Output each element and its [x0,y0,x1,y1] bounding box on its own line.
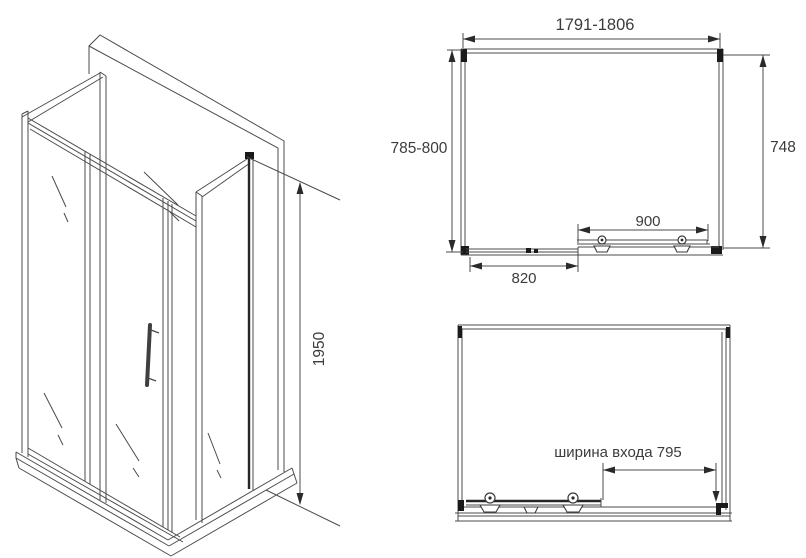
depth-range-dimension-label: 785-800 [391,140,448,157]
door-width-dimension-label: 900 [635,213,660,230]
door-stopper [524,507,538,513]
dimension-plan-depth: 785-800 [391,50,463,252]
side-width-dimension-label: 748 [770,139,796,156]
shower-tray [16,452,297,556]
dimension-plan-side: 748 [723,55,796,248]
sliding-door [85,151,172,532]
plan-walls [461,49,723,255]
roller-icon [480,493,500,512]
fixed-panel-width-dimension-label: 820 [511,270,536,287]
front-frame [28,118,196,542]
dimension-plan-door: 900 [578,213,708,243]
left-side-wall [22,72,106,503]
back-panel [89,35,284,472]
door-handle [147,325,159,385]
glass-reflection-marks [44,172,221,478]
dimension-plan-width: 1791-1806 [463,16,720,48]
shower-enclosure-drawing: 1950 [0,0,806,558]
plan-view: 1791-1806 785-800 748 [391,16,796,287]
right-side-wall [196,152,254,523]
open-sliding-door [466,493,601,513]
plan-sliding-door [577,236,719,252]
width-range-dimension-label: 1791-1806 [556,16,635,34]
dimension-height: 1950 [247,157,340,526]
dimension-entrance-width: ширина входа 795 [554,444,719,502]
height-dimension-label: 1950 [311,331,328,366]
isometric-view: 1950 [16,35,340,556]
entrance-width-dimension-label: ширина входа 795 [554,444,682,461]
roller-icon [563,493,583,512]
open-door-view: ширина входа 795 [455,325,732,521]
open-view-walls [458,325,730,521]
dimension-plan-fixed-panel: 820 [470,247,578,287]
technical-drawing-page: 1950 [0,0,806,558]
